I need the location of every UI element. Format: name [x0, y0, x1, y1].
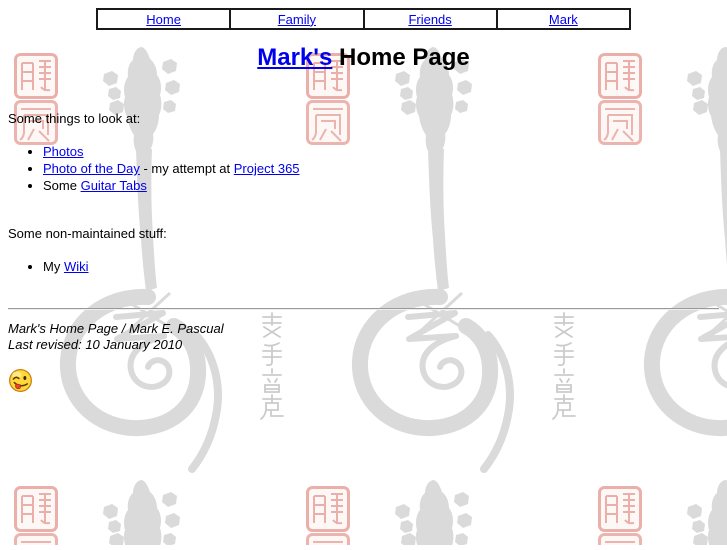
guitar-tabs-link[interactable]: Guitar Tabs	[81, 178, 147, 193]
nav-link-family[interactable]: Family	[278, 12, 316, 27]
nav-link-mark[interactable]: Mark	[549, 12, 578, 27]
watermark-tile	[600, 480, 727, 545]
tabs-text: Some	[43, 178, 81, 193]
list-item: Photos	[43, 143, 719, 160]
photo-of-the-day-link[interactable]: Photo of the Day	[43, 161, 140, 176]
things-list: Photos Photo of the Day - my attempt at …	[8, 143, 719, 194]
nav-link-home[interactable]: Home	[146, 12, 181, 27]
intro-nonmaintained-text: Some non-maintained stuff:	[8, 226, 719, 242]
nav-table: Home Family Friends Mark	[96, 8, 631, 30]
photos-link[interactable]: Photos	[43, 144, 83, 159]
nav-cell-mark: Mark	[497, 9, 630, 29]
title-marks-link[interactable]: Mark's	[257, 44, 332, 71]
footer-revised: Last revised: 10 January 2010	[8, 337, 719, 353]
page-footer: Mark's Home Page / Mark E. Pascual Last …	[8, 321, 719, 353]
page-title: Mark's Home Page	[8, 45, 719, 71]
intro-things-text: Some things to look at:	[8, 111, 719, 127]
watermark-tile	[16, 480, 284, 545]
page-title-text: Home Page	[332, 44, 469, 71]
nav-link-friends[interactable]: Friends	[408, 12, 451, 27]
potd-text: - my attempt at	[140, 161, 234, 176]
footer-byline: Mark's Home Page / Mark E. Pascual	[8, 321, 719, 337]
list-item: Some Guitar Tabs	[43, 177, 719, 194]
nav-cell-friends: Friends	[364, 9, 497, 29]
project-365-link[interactable]: Project 365	[234, 161, 300, 176]
watermark-tile	[308, 480, 576, 545]
list-item: Photo of the Day - my attempt at Project…	[43, 160, 719, 177]
home-page: Home Family Friends Mark Mark's Home Pag…	[0, 0, 727, 401]
nonmaintained-list: My Wiki	[8, 258, 719, 275]
wiki-text: My	[43, 259, 64, 274]
footer-divider	[8, 308, 719, 310]
list-item: My Wiki	[43, 258, 719, 275]
nav-cell-home: Home	[97, 9, 230, 29]
wiki-link[interactable]: Wiki	[64, 259, 89, 274]
wink-tongue-smiley-icon	[8, 368, 33, 393]
nav-cell-family: Family	[230, 9, 363, 29]
